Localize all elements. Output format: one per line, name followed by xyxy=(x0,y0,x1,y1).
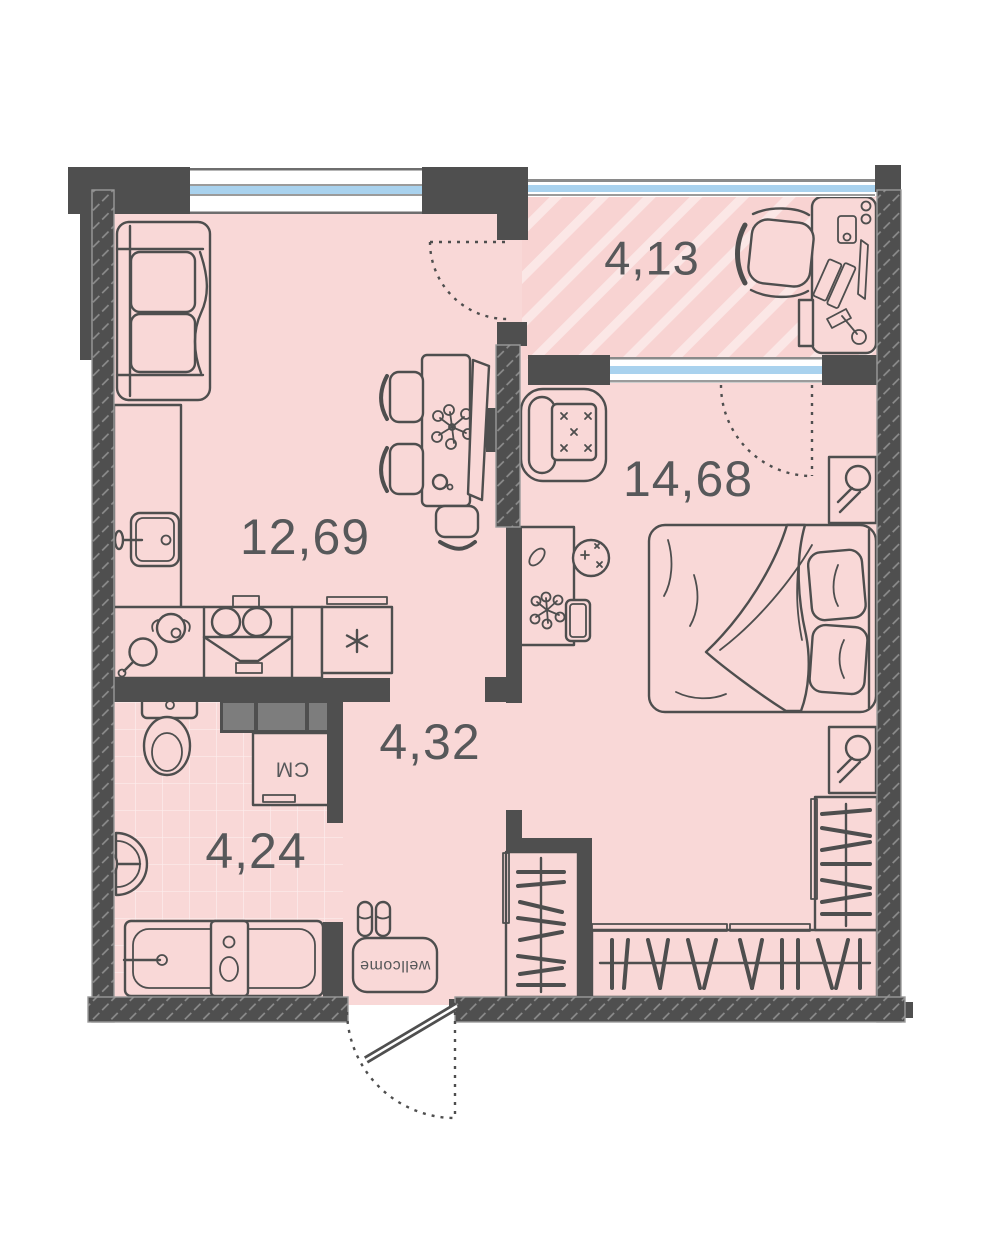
loggia-window xyxy=(528,179,875,197)
dining-table xyxy=(422,355,473,506)
area-label-bedroom: 14,68 xyxy=(623,454,753,504)
bed xyxy=(649,525,876,712)
pillow xyxy=(809,624,869,695)
fridge xyxy=(322,597,392,673)
living-room-window xyxy=(190,168,422,214)
pillow xyxy=(807,549,867,621)
doormat-label: wellcome xyxy=(360,957,431,973)
wardrobe xyxy=(592,924,877,997)
tv-partition xyxy=(496,345,520,527)
area-label-loggia: 4,13 xyxy=(604,235,699,282)
floor-plan-drawing xyxy=(0,0,1000,1237)
bedroom-window xyxy=(610,357,822,383)
washing-machine-label: СМ xyxy=(275,759,309,780)
area-label-hallway: 4,32 xyxy=(379,717,480,767)
floor-plan: 12,69 4,13 14,68 4,32 4,24 СМ wellcome xyxy=(0,0,1000,1237)
armchair xyxy=(521,389,606,481)
mirror-cabinet xyxy=(829,727,876,793)
wardrobe xyxy=(503,852,578,997)
mirror xyxy=(573,540,609,576)
wardrobe xyxy=(811,797,877,930)
bathtub xyxy=(124,921,323,996)
entrance-door xyxy=(347,1006,457,1118)
mirror-cabinet xyxy=(829,457,876,523)
sofa xyxy=(117,222,210,400)
area-label-bathroom: 4,24 xyxy=(205,826,306,876)
area-label-kitchen-living: 12,69 xyxy=(240,512,370,562)
